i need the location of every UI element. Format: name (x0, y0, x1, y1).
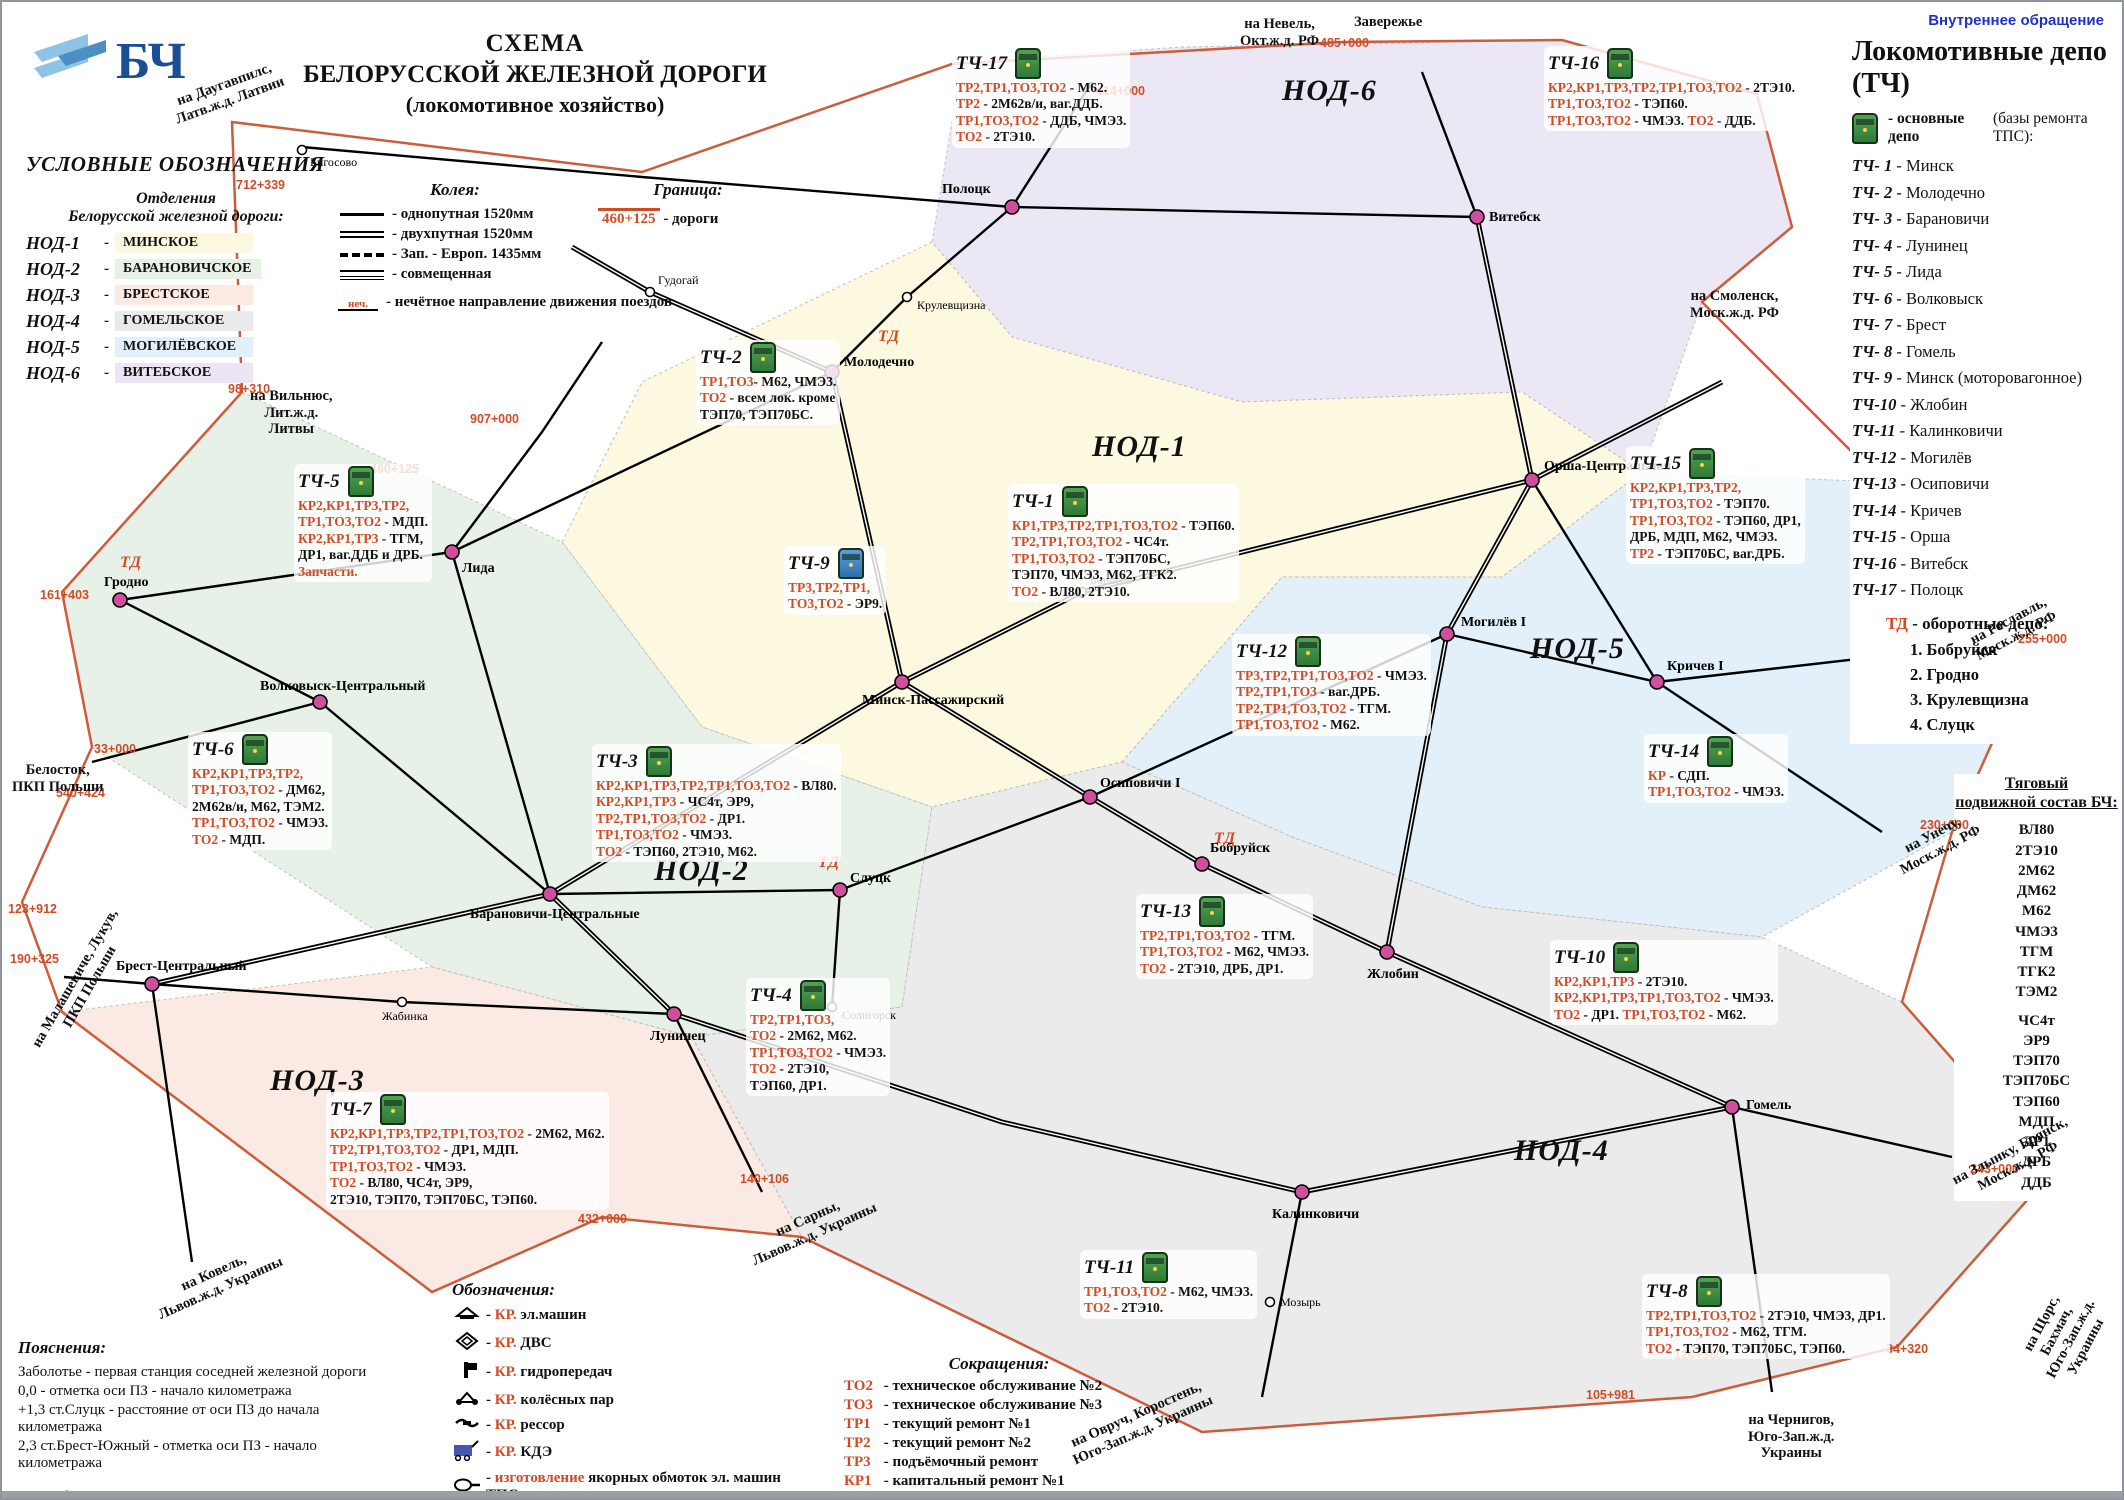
stock-item: 2ТЭ10 (1954, 841, 2119, 861)
depot-callout-line: КР2,КР1,ТР3 - ЧС4т, ЭР9, (596, 794, 837, 810)
depot-callout-id: ТЧ-9 (788, 552, 830, 575)
direction-note: Белосток, ПКП Польши (12, 762, 103, 795)
depot-callout-line: ТО2 - всем лок. кроме (700, 390, 836, 406)
border-legend: Граница: 460+125 - дороги (598, 180, 778, 228)
depot-callout-id: ТЧ-16 (1548, 52, 1599, 75)
depot-callout-id: ТЧ-10 (1554, 946, 1605, 969)
depot-callout-id: ТЧ-13 (1140, 900, 1191, 923)
depot-callout: ТЧ-9ТР3,ТР2,ТР1,ТО3,ТО2 - ЭР9. (784, 546, 886, 615)
station-dot (1295, 1185, 1309, 1199)
stock-item: ТЭП60 (1954, 1092, 2119, 1112)
depot-callout-header: ТЧ-4 (750, 980, 886, 1011)
credits: Разработана в Конструкторско-техническом… (18, 1488, 378, 1500)
depot-icon (1707, 736, 1733, 767)
depot-callout: ТЧ-12ТР3,ТР2,ТР1,ТО3,ТО2 - ЧМЭ3.ТР2,ТР1,… (1232, 634, 1431, 736)
symbols-heading: Обозначения: (452, 1280, 782, 1300)
depot-code: ТЧ-16 (1852, 554, 1896, 573)
depot-code: ТЧ- 9 (1852, 368, 1892, 387)
depot-callout-line: ТО3,ТО2 - ЭР9. (788, 596, 882, 612)
station-label: Гудогай (658, 273, 699, 287)
station-dot (1380, 945, 1394, 959)
station-label: Полоцк (942, 182, 992, 197)
station-dot (1650, 675, 1664, 689)
depot-list-item: ТЧ-11 - Калинковичи (1852, 421, 2114, 441)
explanations-block: Пояснения: Заболотье - первая станция со… (18, 1338, 378, 1500)
abbreviation-row: КР2 - капитальный ремонт №2 (844, 1492, 1154, 1500)
kde-icon (452, 1439, 482, 1466)
station-label: Гродно (104, 575, 149, 590)
station-dot (1725, 1100, 1739, 1114)
depot-code: ТЧ-14 (1852, 501, 1896, 520)
gauge-row: - Зап. - Европ. 1435мм (340, 246, 570, 263)
depot-callout-line: ТР1,ТО3,ТО2 - М62. (1236, 717, 1427, 733)
depot-callout-line: ТР1,ТО3,ТО2 - ДДБ, ЧМЭ3. (956, 113, 1126, 129)
depot-callout-line: ТР1,ТО3- М62, ЧМЭ3. (700, 374, 836, 390)
depot-callout-line: ТР1,ТО3,ТО2 - ЧМЭ3. (750, 1045, 886, 1061)
division-code: НОД-1 (26, 233, 104, 254)
depot-callout: ТЧ-15КР2,КР1,ТР3,ТР2,ТР1,ТО3,ТО2 - ТЭП70… (1626, 446, 1805, 564)
depot-callout: ТЧ-10КР2,КР1,ТР3 - 2ТЭ10.КР2,КР1,ТР3,ТР1… (1550, 940, 1778, 1025)
stock-item: ЧС4т (1954, 1011, 2119, 1031)
depot-list-item: ТЧ- 8 - Гомель (1852, 342, 2114, 362)
station-dot (1525, 473, 1539, 487)
depot-list-item: ТЧ- 6 - Волковыск (1852, 289, 2114, 309)
depot-callout-line: ТР1,ТО3,ТО2 - М62, ЧМЭ3. (1084, 1284, 1253, 1300)
region-label: НОД-1 (1092, 430, 1187, 464)
turn-depot-item: 4. Слуцк (1910, 715, 2114, 735)
depot-callout-line: ТР1,ТО3,ТО2 - М62, ТГМ. (1646, 1324, 1886, 1340)
title-line3: (локомотивное хозяйство) (250, 91, 820, 119)
turn-depot-item: 2. Гродно (1910, 665, 2114, 685)
abbreviation-code: ТР2 (844, 1435, 880, 1452)
km-post-label: 432+000 (578, 1212, 627, 1226)
abbreviation-row: ТО3 - техническое обслуживание №3 (844, 1397, 1154, 1414)
euro-track-sample (340, 253, 384, 257)
depot-callout-id: ТЧ-2 (700, 346, 742, 369)
stock-item: ТЭП70БС (1954, 1071, 2119, 1091)
depot-callout-line: ТР1,ТО3,ТО2 - МДП. (298, 514, 428, 530)
depot-callout-header: ТЧ-10 (1554, 942, 1774, 973)
division-row: НОД-5-МОГИЛЁВСКОЕ (26, 337, 326, 358)
division-name-chip: БРЕСТСКОЕ (115, 285, 253, 305)
station-dot (145, 977, 159, 991)
depot-callout-line: ТО2 - 2ТЭ10. (1084, 1300, 1253, 1316)
rolling-stock-heading: Тяговыйподвижной состав БЧ: (1954, 774, 2119, 812)
station-label: Волковыск-Центральный (260, 679, 425, 694)
abbreviation-code: ТО2 (844, 1378, 880, 1395)
symbol-label: - изготовление якорных обмоток эл. машин… (486, 1470, 782, 1500)
legend-heading: УСЛОВНЫЕ ОБОЗНАЧЕНИЯ (26, 152, 325, 177)
depot-icon (1607, 48, 1633, 79)
station-dot (1005, 200, 1019, 214)
double-track-sample (340, 231, 384, 238)
depot-list-item: ТЧ-14 - Кричев (1852, 501, 2114, 521)
station-label: Калинковичи (1272, 1207, 1359, 1222)
symbol-label: - КР. КДЭ (486, 1444, 552, 1461)
depot-callout-line: ТР1,ТО3,ТО2 - ТЭП60. (1548, 96, 1795, 112)
depots-panel-title: Локомотивные депо (ТЧ) (1852, 36, 2114, 100)
symbol-label: - КР. рессор (486, 1417, 565, 1434)
abbreviation-row: ТО2 - техническое обслуживание №2 (844, 1378, 1154, 1395)
depot-callout-line: ТО2 - 2ТЭ10, (750, 1061, 886, 1077)
depot-callout-line: ТР2,ТР1,ТО3, (750, 1012, 886, 1028)
depot-callout: ТЧ-3КР2,КР1,ТР3,ТР2,ТР1,ТО3,ТО2 - ВЛ80.К… (592, 744, 841, 862)
station-dot (667, 1007, 681, 1021)
depot-callout-line: КР2,КР1,ТР3,ТР1,ТО3,ТО2 - ЧМЭ3. (1554, 990, 1774, 1006)
station-label: Жлобин (1367, 967, 1419, 982)
depot-callout: ТЧ-5КР2,КР1,ТР3,ТР2,ТР1,ТО3,ТО2 - МДП.КР… (294, 464, 432, 582)
turn-depot-mark: ТД (878, 328, 899, 346)
depot-icon (242, 734, 268, 765)
internal-circulation-note: Внутреннее обращение (1928, 12, 2104, 29)
abbreviation-code: КР1 (844, 1473, 880, 1490)
depot-code: ТЧ-15 (1852, 527, 1896, 546)
credit-line: Разработана в Конструкторско-техническом… (18, 1488, 378, 1500)
symbol-label: - КР. ДВС (486, 1335, 552, 1352)
km-post-label: 485+000 (1320, 36, 1369, 50)
depot-callout-line: КР2,КР1,ТР3,ТР2, (1630, 480, 1801, 496)
depot-code: ТЧ- 3 (1852, 209, 1892, 228)
gauge-legend: Колея: - однопутная 1520мм - двухпутная … (340, 180, 570, 286)
depot-list-item: ТЧ- 3 - Барановичи (1852, 209, 2114, 229)
logo-text: БЧ (116, 33, 186, 90)
scheme-canvas: ПолоцкВитебскОрша-ЦентральнаяМолодечноМи… (0, 0, 2124, 1500)
region-label: НОД-4 (1514, 1134, 1609, 1168)
stock-item: ТЭП70 (1954, 1051, 2119, 1071)
depot-callout-id: ТЧ-4 (750, 984, 792, 1007)
direction-note: на Смоленск, Моск.ж.д. РФ (1690, 288, 1779, 321)
station-dot (398, 998, 407, 1007)
depot-list-item: ТЧ- 9 - Минск (моторовагонное) (1852, 368, 2114, 388)
depot-code: ТЧ-17 (1852, 580, 1896, 599)
depot-callout-id: ТЧ-17 (956, 52, 1007, 75)
division-code: НОД-6 (26, 363, 104, 384)
region-label: НОД-5 (1530, 632, 1625, 666)
depot-callout: ТЧ-8ТР2,ТР1,ТО3,ТО2 - 2ТЭ10, ЧМЭ3, ДР1.Т… (1642, 1274, 1890, 1359)
abbreviation-row: ТР3 - подъёмочный ремонт (844, 1454, 1154, 1471)
depot-callout-id: ТЧ-7 (330, 1098, 372, 1121)
gauge-row: - двухпутная 1520мм (340, 226, 570, 243)
odd-direction-legend: неч. - нечётное направление движения пое… (338, 294, 672, 311)
depot-list-item: ТЧ-17 - Полоцк (1852, 580, 2114, 600)
depot-code: ТЧ- 1 (1852, 156, 1892, 175)
division-name-chip: ГОМЕЛЬСКОЕ (115, 311, 253, 331)
depot-callout-line: ТР2,ТР1,ТО3 - ваг.ДРБ. (1236, 684, 1427, 700)
depot-icon (1142, 1252, 1168, 1283)
depot-callout-line: ТР2,ТР1,ТО3,ТО2 - ДР1, МДП. (330, 1142, 605, 1158)
depot-callout-line: КР2,КР1,ТР3,ТР2,ТР1,ТО3,ТО2 - 2ТЭ10. (1548, 80, 1795, 96)
title-line2: БЕЛОРУССКОЙ ЖЕЛЕЗНОЙ ДОРОГИ (250, 59, 820, 90)
depot-list-item: ТЧ-15 - Орша (1852, 527, 2114, 547)
abbreviation-row: ТР2 - текущий ремонт №2 (844, 1435, 1154, 1452)
direction-note: на Невель, Окт.ж.д. РФ (1240, 16, 1319, 49)
dvs-icon (452, 1331, 482, 1356)
depot-callout-header: ТЧ-11 (1084, 1252, 1253, 1283)
depot-callout-line: 2ТЭ10, ТЭП70, ТЭП70БС, ТЭП60. (330, 1192, 605, 1208)
depot-callout: ТЧ-7КР2,КР1,ТР3,ТР2,ТР1,ТО3,ТО2 - 2М62, … (326, 1092, 609, 1210)
depot-callout-line: ТР1,ТО3,ТО2 - ЧМЭ3. (596, 827, 837, 843)
border-label: - дороги (663, 211, 718, 227)
odd-direction-label: - нечётное направление движения поездов (386, 294, 672, 311)
depot-callout: ТЧ-4ТР2,ТР1,ТО3,ТО2 - 2М62, М62.ТР1,ТО3,… (746, 978, 890, 1096)
depot-callout-line: ТЭП70, ТЭП70БС. (700, 407, 836, 423)
depot-list-item: ТЧ-13 - Осиповичи (1852, 474, 2114, 494)
depot-list-item: ТЧ- 7 - Брест (1852, 315, 2114, 335)
division-row: НОД-6-ВИТЕБСКОЕ (26, 363, 326, 384)
depot-code: ТЧ-10 (1852, 395, 1896, 414)
station-dot (1440, 627, 1454, 641)
depot-callout-header: ТЧ-13 (1140, 896, 1309, 927)
depot-callout: ТЧ-16КР2,КР1,ТР3,ТР2,ТР1,ТО3,ТО2 - 2ТЭ10… (1544, 46, 1799, 131)
depot-callout-id: ТЧ-11 (1084, 1256, 1134, 1279)
depot-callout-line: ТР2,ТР1,ТО3,ТО2 - ТГМ. (1140, 928, 1309, 944)
depot-callout-header: ТЧ-6 (192, 734, 328, 765)
abbreviation-row: КР1 - капитальный ремонт №1 (844, 1473, 1154, 1490)
symbol-row: - КР. колёсных пар (452, 1389, 782, 1412)
depot-callout-line: ТР1,ТО3,ТО2 - ЧМЭ3. (330, 1159, 605, 1175)
depot-callout-line: ТО2 - 2ТЭ10, ДРБ, ДР1. (1140, 961, 1309, 977)
gauge-heading: Колея: (340, 180, 570, 200)
depot-callout-line: ДРБ, МДП, М62, ЧМЭ3. (1630, 529, 1801, 545)
stock-item: ЧМЭ3 (1954, 922, 2119, 942)
depot-list-item: ТЧ- 5 - Лида (1852, 262, 2114, 282)
depot-callout: ТЧ-6КР2,КР1,ТР3,ТР2,ТР1,ТО3,ТО2 - ДМ62,2… (188, 732, 332, 850)
depot-callout-header: ТЧ-12 (1236, 636, 1427, 667)
depot-callout: ТЧ-17ТР2,ТР1,ТО3,ТО2 - М62.ТР2 - 2М62в/и… (952, 46, 1130, 148)
station-label: Гомель (1746, 1098, 1792, 1113)
depot-callout-line: ТО2 - МДП. (192, 832, 328, 848)
station-dot (1083, 790, 1097, 804)
depot-icon (1015, 48, 1041, 79)
abbreviations-block: Сокращения: ТО2 - техническое обслуживан… (844, 1354, 1154, 1500)
station-dot (1470, 210, 1484, 224)
depot-icon (1696, 1276, 1722, 1307)
symbols-block: Обозначения: - КР. эл.машин- КР. ДВС- КР… (452, 1280, 782, 1500)
division-code: НОД-2 (26, 259, 104, 280)
depot-callout-header: ТЧ-1 (1012, 486, 1235, 517)
combined-track-sample (340, 270, 384, 280)
division-row: НОД-1-МИНСКОЕ (26, 233, 326, 254)
division-name-chip: ВИТЕБСКОЕ (115, 363, 253, 383)
depot-callout-line: КР1,ТР3,ТР2,ТР1,ТО3,ТО2 - ТЭП60. (1012, 518, 1235, 534)
depot-list-item: ТЧ-10 - Жлобин (1852, 395, 2114, 415)
depot-list-item: ТЧ- 4 - Лунинец (1852, 236, 2114, 256)
odd-direction-arrow: неч. (338, 300, 378, 311)
stock-item: ТГМ (1954, 942, 2119, 962)
stock-item: М62 (1954, 901, 2119, 921)
depot-code: ТЧ- 8 (1852, 342, 1892, 361)
station-dot (895, 675, 909, 689)
depot-callout-line: ТР1,ТО3,ТО2 - ЧМЭ3. (1648, 784, 1784, 800)
depot-callout-header: ТЧ-5 (298, 466, 428, 497)
depot-list-item: ТЧ-16 - Витебск (1852, 554, 2114, 574)
station-label: Осиповичи I (1100, 776, 1180, 791)
border-km-sample: 460+125 (598, 208, 660, 228)
page-title: СХЕМА БЕЛОРУССКОЙ ЖЕЛЕЗНОЙ ДОРОГИ (локом… (250, 28, 820, 118)
depot-icon (1689, 448, 1715, 479)
depot-callout: ТЧ-14КР - СДП.ТР1,ТО3,ТО2 - ЧМЭ3. (1644, 734, 1788, 803)
emu-depot-icon (838, 548, 864, 579)
depot-callout-id: ТЧ-14 (1648, 740, 1699, 763)
turn-depot-mark: ТД (120, 554, 141, 572)
depot-icon (750, 342, 776, 373)
station-label: Лунинец (650, 1029, 706, 1044)
depot-icon (800, 980, 826, 1011)
depot-code: ТЧ- 6 (1852, 289, 1892, 308)
station-label: Могилёв I (1461, 615, 1526, 630)
depot-callout-line: ТР2 - ТЭП70БС, ваг.ДРБ. (1630, 546, 1801, 562)
division-name-chip: БАРАНОВИЧСКОЕ (115, 259, 261, 279)
depot-callout-header: ТЧ-17 (956, 48, 1126, 79)
division-row: НОД-2-БАРАНОВИЧСКОЕ (26, 259, 326, 280)
depot-code: ТЧ-13 (1852, 474, 1896, 493)
depot-callout-line: КР2,КР1,ТР3,ТР2, (192, 766, 328, 782)
depot-callout-line: ТЭП70, ЧМЭ3, М62, ТГК2. (1012, 567, 1235, 583)
station-dot (1266, 1298, 1275, 1307)
depot-callout-line: ТР1,ТО3,ТО2 - ЧМЭ3. ТО2 - ДДБ. (1548, 113, 1795, 129)
station-dot (445, 545, 459, 559)
symbol-row: - КР. ДВС (452, 1331, 782, 1356)
depot-callout-line: ТР1,ТО3,ТО2 - ЧМЭ3. (192, 815, 328, 831)
gauge-row: - совмещенная (340, 266, 570, 283)
km-post-label: 161+403 (40, 588, 89, 602)
depot-callout: ТЧ-13ТР2,ТР1,ТО3,ТО2 - ТГМ.ТР1,ТО3,ТО2 -… (1136, 894, 1313, 979)
depot-callout-line: КР - СДП. (1648, 768, 1784, 784)
symbol-label: - КР. гидропередач (486, 1364, 612, 1381)
depot-code: ТЧ- 5 (1852, 262, 1892, 281)
km-post-label: 34+320 (1886, 1342, 1928, 1356)
depot-callout-line: ТР2,ТР1,ТО3,ТО2 - М62. (956, 80, 1126, 96)
depot-callout-header: ТЧ-7 (330, 1094, 605, 1125)
station-label: Минск-Пассажирский (862, 693, 1004, 708)
elmach-icon (452, 1304, 482, 1327)
depot-callout-header: ТЧ-9 (788, 548, 882, 579)
armature-icon (452, 1478, 482, 1497)
depot-code: ТЧ- 4 (1852, 236, 1892, 255)
explanations-heading: Пояснения: (18, 1338, 378, 1358)
depot-callout-header: ТЧ-2 (700, 342, 836, 373)
stock-item: ДМ62 (1954, 881, 2119, 901)
stock-item: 2М62 (1954, 861, 2119, 881)
depot-code: ТЧ-12 (1852, 448, 1896, 467)
direction-note: на Чернигов, Юго-Зап.ж.д. Украины (1748, 1412, 1834, 1462)
depot-callout-line: ТР2,ТР1,ТО3,ТО2 - 2ТЭ10, ЧМЭ3, ДР1. (1646, 1308, 1886, 1324)
direction-note: на Вильнюс, Лит.ж.д. Литвы (250, 388, 333, 438)
division-code: НОД-3 (26, 285, 104, 306)
explanation-line: 0,0 - отметка оси ПЗ - начало километраж… (18, 1383, 378, 1400)
wheelpair-icon (452, 1389, 482, 1412)
station-label: Жабинка (382, 1009, 428, 1023)
station-label: Мозырь (1280, 1295, 1321, 1309)
divisions-subheading: Отделения Белорусской железной дороги: (26, 190, 326, 227)
depot-icon (348, 466, 374, 497)
depot-callout-header: ТЧ-16 (1548, 48, 1795, 79)
division-code: НОД-4 (26, 311, 104, 332)
divisions-legend: Отделения Белорусской железной дороги: Н… (26, 190, 326, 389)
depot-callout-line: ТР2,ТР1,ТО3,ТО2 - ТГМ. (1236, 701, 1427, 717)
depot-callout-line: ТО2 - 2ТЭ10. (956, 129, 1126, 145)
depot-callout-id: ТЧ-5 (298, 470, 340, 493)
abbreviation-code: ТР1 (844, 1416, 880, 1433)
depot-icon (1199, 896, 1225, 927)
depot-callout-line: ТО2 - ТЭП60, 2ТЭ10, М62. (596, 844, 837, 860)
depot-icon (1295, 636, 1321, 667)
depot-callout-header: ТЧ-3 (596, 746, 837, 777)
depot-callout-line: ТО2 - ТЭП70, ТЭП70БС, ТЭП60. (1646, 1341, 1886, 1357)
depot-callout-line: 2М62в/и, М62, ТЭМ2. (192, 799, 328, 815)
single-track-sample (340, 213, 384, 216)
depot-callout-id: ТЧ-12 (1236, 640, 1287, 663)
division-row: НОД-3-БРЕСТСКОЕ (26, 285, 326, 306)
abbreviation-code: ТР3 (844, 1454, 880, 1471)
station-label: Кричев I (1667, 659, 1724, 674)
region-label: НОД-6 (1282, 74, 1377, 108)
depot-callout-line: ТО2 - ВЛ80, ЧС4т, ЭР9, (330, 1175, 605, 1191)
symbol-row: - КР. гидропередач (452, 1360, 782, 1385)
station-label: Слуцк (850, 871, 892, 886)
depot-callout-line: Запчасти. (298, 564, 428, 580)
depot-callout-line: ТР2,ТР1,ТО3,ТО2 - ДР1. (596, 811, 837, 827)
depot-icon (380, 1094, 406, 1125)
depot-callout-line: ТР1,ТО3,ТО2 - ТЭП60, ДР1, (1630, 513, 1801, 529)
turn-depot-item: 3. Крулевщизна (1910, 690, 2114, 710)
depot-code: ТЧ- 2 (1852, 183, 1892, 202)
depot-code: ТЧ- 7 (1852, 315, 1892, 334)
depot-icon (1613, 942, 1639, 973)
depot-callout-line: ТР2 - 2М62в/и, ваг.ДДБ. (956, 96, 1126, 112)
abbreviations-heading: Сокращения: (844, 1354, 1154, 1374)
explanation-line: 2,3 ст.Брест-Южный - отметка оси ПЗ - на… (18, 1438, 378, 1472)
station-dot (903, 293, 912, 302)
stock-item: ЭР9 (1954, 1031, 2119, 1051)
abbreviation-code: КР2 (844, 1492, 880, 1500)
symbol-row: - КР. КДЭ (452, 1439, 782, 1466)
depot-list-item: ТЧ- 2 - Молодечно (1852, 183, 2114, 203)
depot-callout-line: ТО2 - ДР1. ТР1,ТО3,ТО2 - М62. (1554, 1007, 1774, 1023)
depot-callout: ТЧ-11ТР1,ТО3,ТО2 - М62, ЧМЭ3.ТО2 - 2ТЭ10… (1080, 1250, 1257, 1319)
km-post-label: 105+981 (1586, 1388, 1635, 1402)
division-name-chip: МИНСКОЕ (115, 233, 253, 253)
depot-callout: ТЧ-2ТР1,ТО3- М62, ЧМЭ3.ТО2 - всем лок. к… (696, 340, 840, 425)
km-post-label: 712+339 (236, 178, 285, 192)
symbol-row: - КР. эл.машин (452, 1304, 782, 1327)
station-dot (313, 695, 327, 709)
symbol-label: - КР. колёсных пар (486, 1392, 614, 1409)
depot-callout-line: ДР1, ваг.ДДБ и ДРБ. (298, 547, 428, 563)
km-post-label: 123+912 (8, 902, 57, 916)
station-label: Крулевщизна (917, 298, 986, 312)
depot-callout-line: ТР2,ТР1,ТО3,ТО2 - ЧС4т. (1012, 534, 1235, 550)
depot-callout-id: ТЧ-15 (1630, 452, 1681, 475)
depot-icon (646, 746, 672, 777)
depot-callout-line: ТР1,ТО3,ТО2 - ТЭП70БС, (1012, 551, 1235, 567)
km-post-label: 190+325 (10, 952, 59, 966)
stock-item: ТГК2 (1954, 962, 2119, 982)
hydro-icon (452, 1360, 482, 1385)
depot-list-item: ТЧ- 1 - Минск (1852, 156, 2114, 176)
depot-callout-header: ТЧ-15 (1630, 448, 1801, 479)
gauge-row: - однопутная 1520мм (340, 206, 570, 223)
depot-callout-line: ТО2 - 2М62, М62. (750, 1028, 886, 1044)
depot-icon (1852, 113, 1878, 144)
depot-callout-line: КР2,КР1,ТР3 - 2ТЭ10. (1554, 974, 1774, 990)
depot-callout-header: ТЧ-8 (1646, 1276, 1886, 1307)
km-post-label: 907+000 (470, 412, 519, 426)
depot-callout-line: ТР1,ТО3,ТО2 - М62, ЧМЭ3. (1140, 944, 1309, 960)
station-dot (1195, 857, 1209, 871)
symbol-row: - КР. рессор (452, 1416, 782, 1435)
depot-callout-line: КР2,КР1,ТР3,ТР2, (298, 498, 428, 514)
